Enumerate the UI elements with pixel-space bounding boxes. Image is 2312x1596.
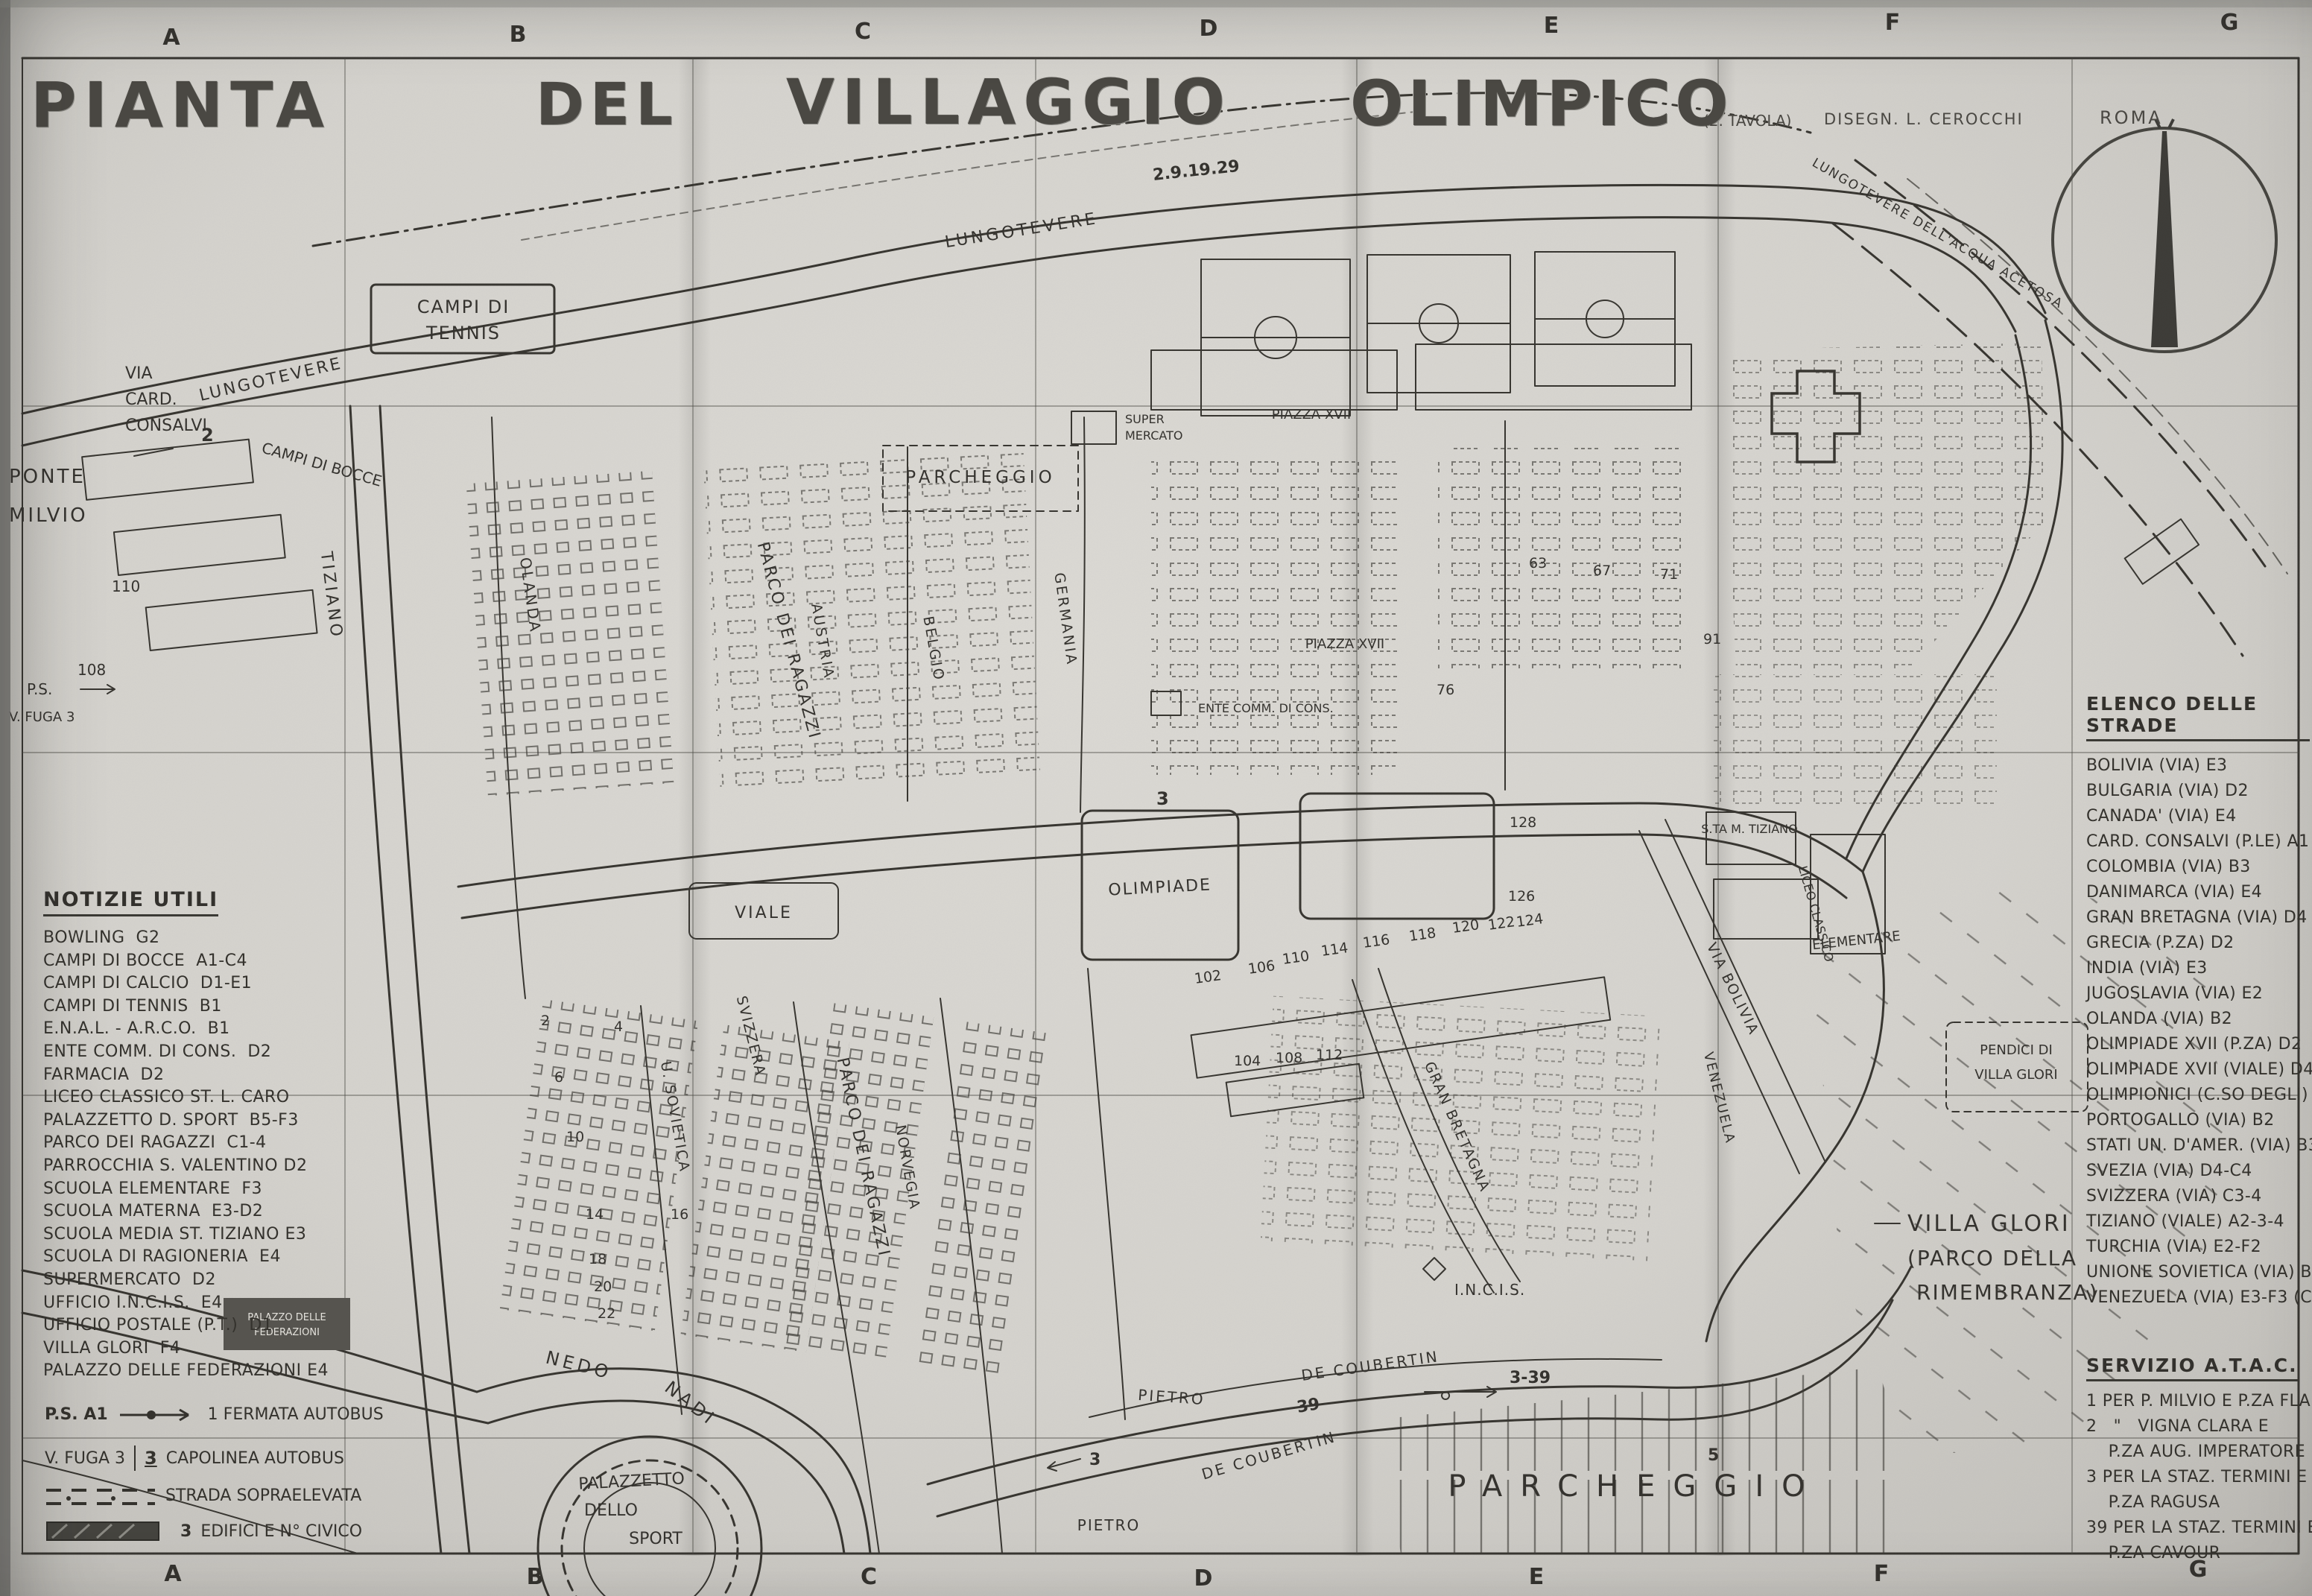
notizie-item: SCUOLA MEDIA ST. TIZIANO E3 — [43, 1223, 345, 1247]
notizie-item: FARMACIA D2 — [43, 1064, 345, 1087]
notizie-item: SCUOLA DI RAGIONERIA E4 — [43, 1246, 345, 1269]
atac-line: 39 PER LA STAZ. TERMINI E — [2086, 1516, 2310, 1541]
notizie-item: VILLA GLORI F4 — [43, 1337, 345, 1361]
notizie-item: PARCO DEI RAGAZZI C1-4 — [43, 1132, 345, 1155]
street-item: CANADA' (VIA) E4 — [2086, 804, 2310, 829]
street-item: VENEZUELA (VIA) E3-F3 (C3) — [2086, 1285, 2310, 1311]
notizie-item: CAMPI DI CALCIO D1-E1 — [43, 972, 345, 995]
street-item: STATI UN. D'AMER. (VIA) B3-4 — [2086, 1133, 2310, 1159]
elenco-strade-panel: ELENCO DELLE STRADE BOLIVIA (VIA) E3BULG… — [2086, 693, 2310, 1311]
atac-line: 1 PER P. MILVIO E P.ZA FLAM. — [2086, 1389, 2310, 1414]
street-item: UNIONE SOVIETICA (VIA) B3-4 — [2086, 1260, 2310, 1285]
street-item: TURCHIA (VIA) E2-F2 — [2086, 1235, 2310, 1260]
atac-line: 3 PER LA STAZ. TERMINI E — [2086, 1465, 2310, 1490]
scan-edge — [0, 0, 10, 1596]
street-item: DANIMARCA (VIA) E4 — [2086, 880, 2310, 905]
servizio-atac-heading: SERVIZIO A.T.A.C. — [2086, 1355, 2298, 1381]
street-item: TIZIANO (VIALE) A2-3-4 — [2086, 1209, 2310, 1235]
scan-grain — [0, 0, 2312, 1596]
atac-line: P.ZA AUG. IMPERATORE — [2086, 1440, 2310, 1465]
notizie-utili-heading: NOTIZIE UTILI — [43, 888, 218, 916]
notizie-utili-panel: NOTIZIE UTILI BOWLING G2CAMPI DI BOCCE A… — [43, 888, 345, 1383]
title-credit: DISEGN. L. CEROCCHI — [1824, 110, 2024, 128]
atac-line: 2 " VIGNA CLARA E — [2086, 1414, 2310, 1440]
street-item: OLIMPIADE XVII (P.ZA) D2 — [2086, 1032, 2310, 1057]
ps-ref: A1 — [83, 1405, 107, 1424]
notizie-item: E.N.A.L. - A.R.C.O. B1 — [43, 1018, 345, 1041]
notizie-item: PALAZZETTO D. SPORT B5-F3 — [43, 1109, 345, 1133]
notizie-item: SCUOLA MATERNA E3-D2 — [43, 1200, 345, 1223]
notizie-item: PALAZZO DELLE FEDERAZIONI E4 — [43, 1360, 345, 1383]
edifici-icon — [45, 1519, 171, 1544]
edifici-label: EDIFICI E N° CIVICO — [200, 1522, 362, 1541]
map-sheet: A B C D E F G A B C D E F G — [0, 0, 2312, 1596]
title-word-olimpico: OLIMPICO — [1350, 67, 1700, 140]
notizie-item: SCUOLA ELEMENTARE F3 — [43, 1178, 345, 1201]
street-item: GRAN BRETAGNA (VIA) D4 — [2086, 905, 2310, 931]
notizie-item: UFFICIO POSTALE (P.T.) D1 — [43, 1314, 345, 1337]
notizie-item: CAMPI DI BOCCE A1-C4 — [43, 950, 345, 973]
title-word-villaggio: VILLAGGIO — [786, 66, 1211, 139]
notizie-item: PARROCCHIA S. VALENTINO D2 — [43, 1155, 345, 1178]
ps-text: P.S. — [45, 1405, 78, 1424]
v-fuga-label: V. FUGA 3 — [45, 1449, 125, 1468]
title-city: ROMA — [2100, 107, 2163, 128]
notizie-item: ENTE COMM. DI CONS. D2 — [43, 1041, 345, 1064]
notizie-item: UFFICIO I.N.C.I.S. E4 — [43, 1292, 345, 1315]
notizie-item: SUPERMERCATO D2 — [43, 1269, 345, 1292]
notizie-item: LICEO CLASSICO ST. L. CARO — [43, 1086, 345, 1109]
street-item: OLANDA (VIA) B2 — [2086, 1007, 2310, 1032]
street-item: JUGOSLAVIA (VIA) E2 — [2086, 981, 2310, 1007]
strada-sopraelevata-icon — [45, 1486, 156, 1505]
title-note: (2. TAVOLA) — [1703, 112, 1791, 130]
notizie-item: BOWLING G2 — [43, 927, 345, 950]
capolinea-label: CAPOLINEA AUTOBUS — [166, 1449, 344, 1468]
elenco-strade-heading: ELENCO DELLE STRADE — [2086, 693, 2310, 741]
scan-edge — [0, 0, 2312, 7]
street-item: BOLIVIA (VIA) E3 — [2086, 753, 2310, 779]
ps-ref-label: P.S. A1 — [45, 1405, 108, 1424]
atac-line: P.ZA RAGUSA — [2086, 1490, 2310, 1516]
title-word-del: DEL — [522, 72, 693, 139]
street-item: BULGARIA (VIA) D2 — [2086, 779, 2310, 804]
street-item: SVIZZERA (VIA) C3-4 — [2086, 1184, 2310, 1209]
strada-sopraelevata-label: STRADA SOPRAELEVATA — [165, 1486, 361, 1505]
street-item: GRECIA (P.ZA) D2 — [2086, 931, 2310, 956]
street-item: INDIA (VIA) E3 — [2086, 956, 2310, 981]
title-word-pianta: PIANTA — [21, 69, 341, 142]
servizio-atac-list: 1 PER P. MILVIO E P.ZA FLAM.2 " VIGNA CL… — [2086, 1389, 2310, 1566]
street-item: SVEZIA (VIA) D4-C4 — [2086, 1159, 2310, 1184]
edifici-number: 3 — [180, 1522, 191, 1541]
notizie-item: CAMPI DI TENNIS B1 — [43, 995, 345, 1019]
street-item: OLIMPIONICI (C.SO DEGLI) B1-F1 — [2086, 1083, 2310, 1108]
servizio-atac-panel: SERVIZIO A.T.A.C. 1 PER P. MILVIO E P.ZA… — [2086, 1355, 2310, 1566]
notizie-utili-list: BOWLING G2CAMPI DI BOCCE A1-C4CAMPI DI C… — [43, 927, 345, 1383]
key-capolinea-row: V. FUGA 3 3 CAPOLINEA AUTOBUS — [45, 1445, 344, 1471]
atac-line: P.ZA CAVOUR — [2086, 1541, 2310, 1566]
street-item: PORTOGALLO (VIA) B2 — [2086, 1108, 2310, 1133]
key-strada-row: STRADA SOPRAELEVATA — [45, 1486, 361, 1505]
elenco-strade-list: BOLIVIA (VIA) E3BULGARIA (VIA) D2CANADA'… — [2086, 753, 2310, 1311]
street-item: CARD. CONSALVI (P.LE) A1 — [2086, 829, 2310, 855]
fermata-autobus-icon — [117, 1407, 199, 1423]
key-fermata-row: P.S. A1 1 FERMATA AUTOBUS — [45, 1405, 384, 1424]
street-item: COLOMBIA (VIA) B3 — [2086, 855, 2310, 880]
villaggio-olimpico-map: A B C D E F G A B C D E F G — [0, 0, 2312, 1596]
street-item: OLIMPIADE XVII (VIALE) D4 — [2086, 1057, 2310, 1083]
key-edifici-row: 3 EDIFICI E N° CIVICO — [45, 1519, 362, 1544]
capolinea-number: 3 — [145, 1448, 157, 1469]
fermata-label: 1 FERMATA AUTOBUS — [208, 1405, 384, 1424]
